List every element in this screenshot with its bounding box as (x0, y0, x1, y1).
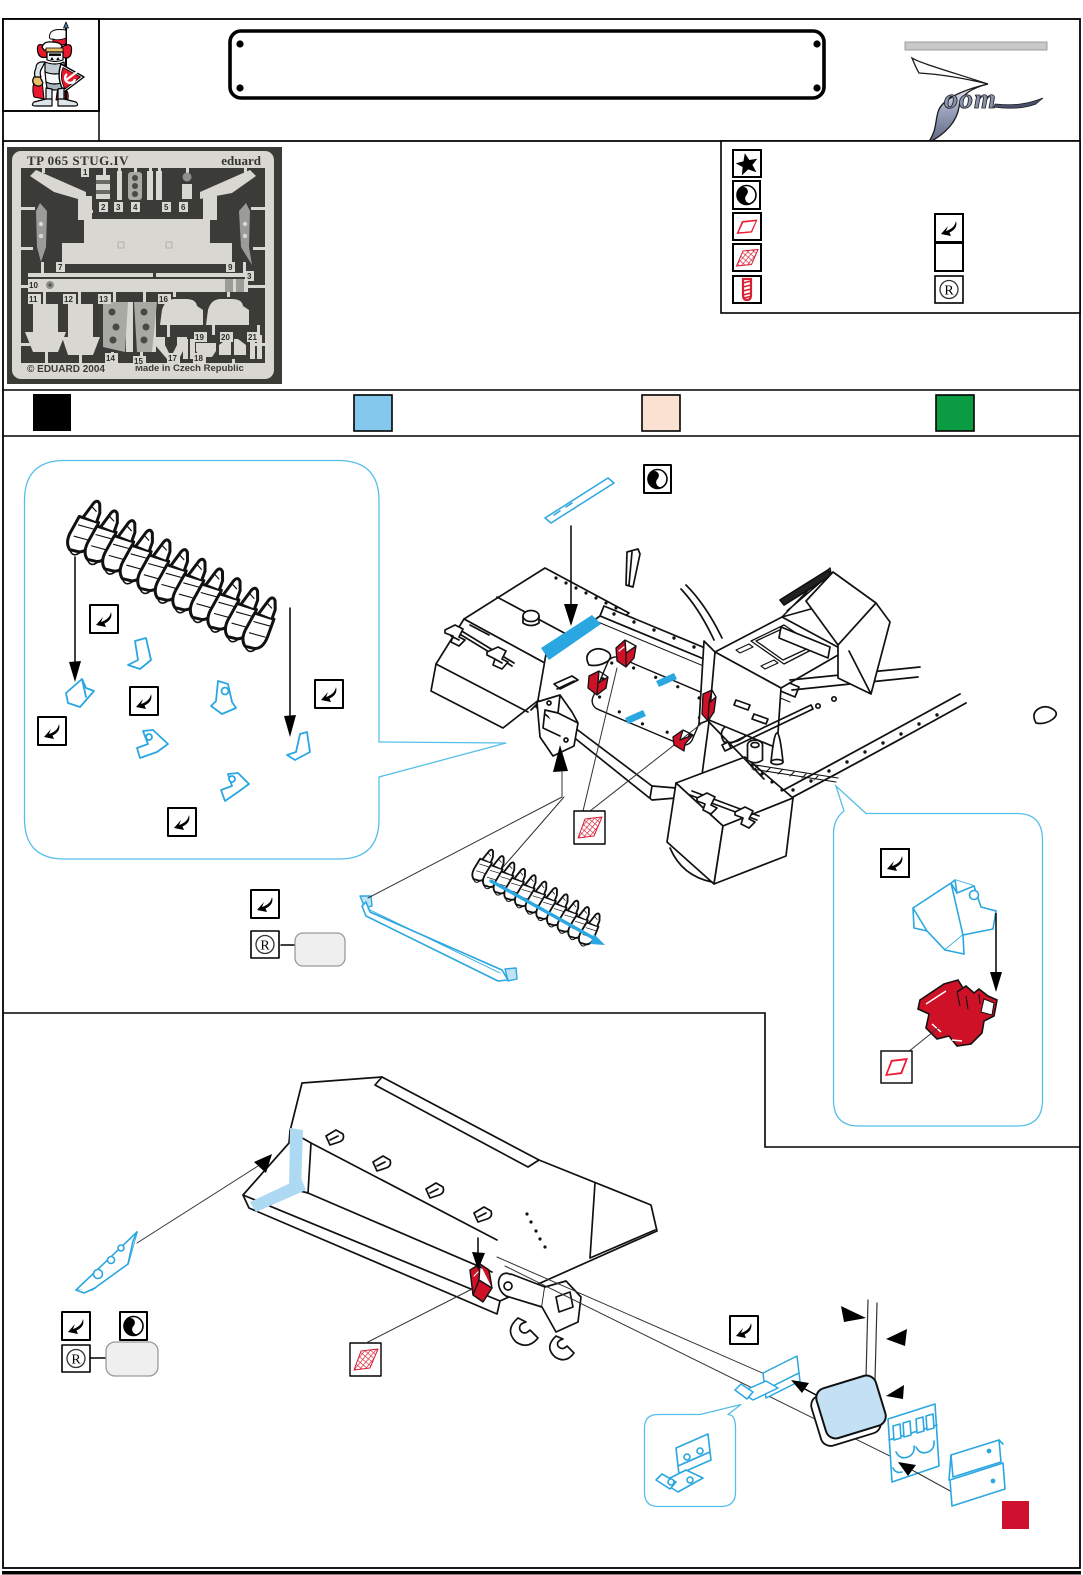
svg-text:© EDUARD 2004: © EDUARD 2004 (27, 364, 105, 375)
svg-text:7: 7 (58, 263, 63, 272)
svg-text:11: 11 (29, 295, 38, 304)
svg-text:2: 2 (101, 203, 106, 212)
svg-text:12: 12 (64, 295, 73, 304)
svg-text:10: 10 (29, 281, 38, 290)
svg-text:1: 1 (83, 168, 88, 177)
svg-text:oom: oom (944, 84, 997, 115)
svg-text:21: 21 (248, 333, 257, 342)
svg-text:4: 4 (133, 203, 138, 212)
svg-text:6: 6 (181, 203, 186, 212)
svg-text:5: 5 (164, 203, 169, 212)
svg-text:16: 16 (159, 295, 168, 304)
svg-text:TP 065 STUG.IV: TP 065 STUG.IV (27, 153, 129, 168)
svg-text:15: 15 (134, 357, 143, 366)
svg-text:eduard: eduard (221, 153, 262, 168)
svg-text:18: 18 (194, 354, 203, 363)
svg-text:17: 17 (168, 354, 177, 363)
svg-text:13: 13 (99, 295, 108, 304)
svg-text:20: 20 (221, 333, 230, 342)
svg-text:3: 3 (247, 272, 252, 281)
svg-text:19: 19 (195, 333, 204, 342)
svg-text:3: 3 (116, 203, 121, 212)
svg-text:14: 14 (106, 354, 115, 363)
svg-text:Made in Czech Republic: Made in Czech Republic (135, 363, 244, 374)
svg-text:9: 9 (228, 263, 233, 272)
